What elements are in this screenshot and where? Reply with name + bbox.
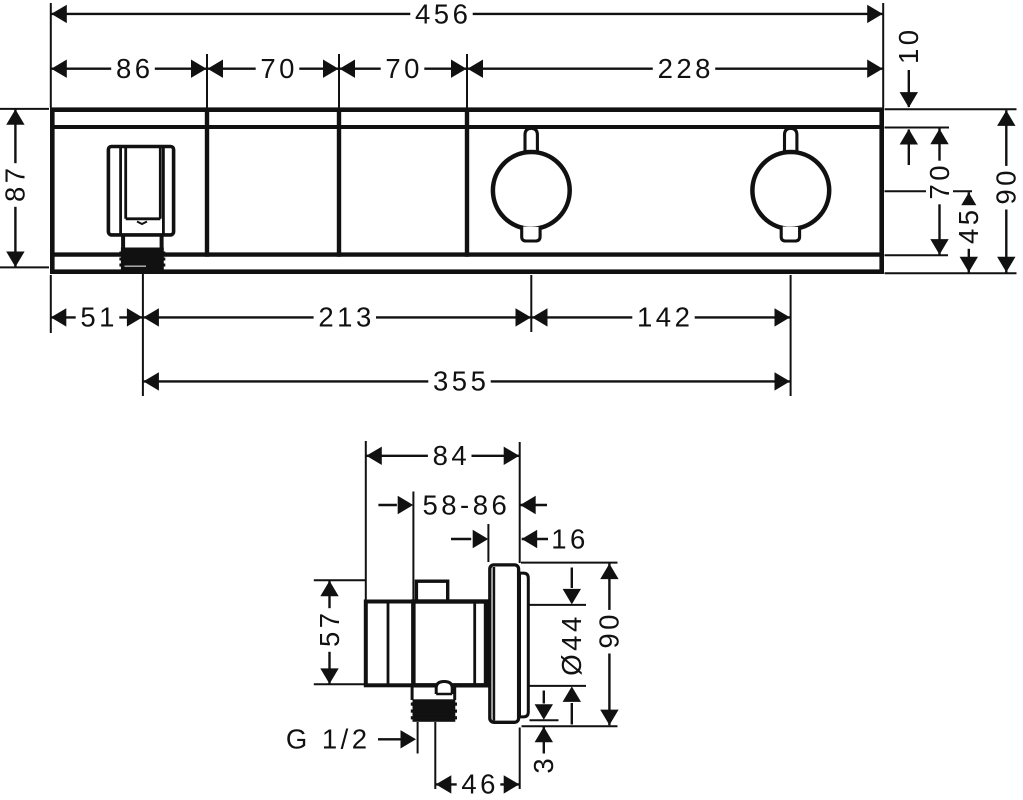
svg-text:70: 70 xyxy=(924,162,955,200)
svg-text:3: 3 xyxy=(528,755,559,774)
svg-text:51: 51 xyxy=(80,302,118,333)
svg-text:58-86: 58-86 xyxy=(422,489,510,520)
svg-text:84: 84 xyxy=(433,440,471,471)
svg-text:70: 70 xyxy=(385,53,423,84)
svg-text:142: 142 xyxy=(637,302,693,333)
svg-text:456: 456 xyxy=(415,0,471,30)
svg-text:57: 57 xyxy=(314,609,345,647)
svg-text:213: 213 xyxy=(318,302,374,333)
svg-text:G 1/2: G 1/2 xyxy=(286,724,371,755)
svg-text:86: 86 xyxy=(116,53,154,84)
svg-text:10: 10 xyxy=(893,26,924,64)
svg-text:46: 46 xyxy=(461,769,499,800)
svg-text:90: 90 xyxy=(594,611,625,649)
svg-text:355: 355 xyxy=(433,366,489,397)
svg-text:45: 45 xyxy=(953,206,984,244)
svg-text:70: 70 xyxy=(260,53,298,84)
svg-text:228: 228 xyxy=(658,53,714,84)
svg-text:16: 16 xyxy=(551,523,589,554)
svg-text:90: 90 xyxy=(991,167,1022,205)
svg-text:Ø44: Ø44 xyxy=(556,613,587,675)
svg-text:87: 87 xyxy=(0,164,31,202)
